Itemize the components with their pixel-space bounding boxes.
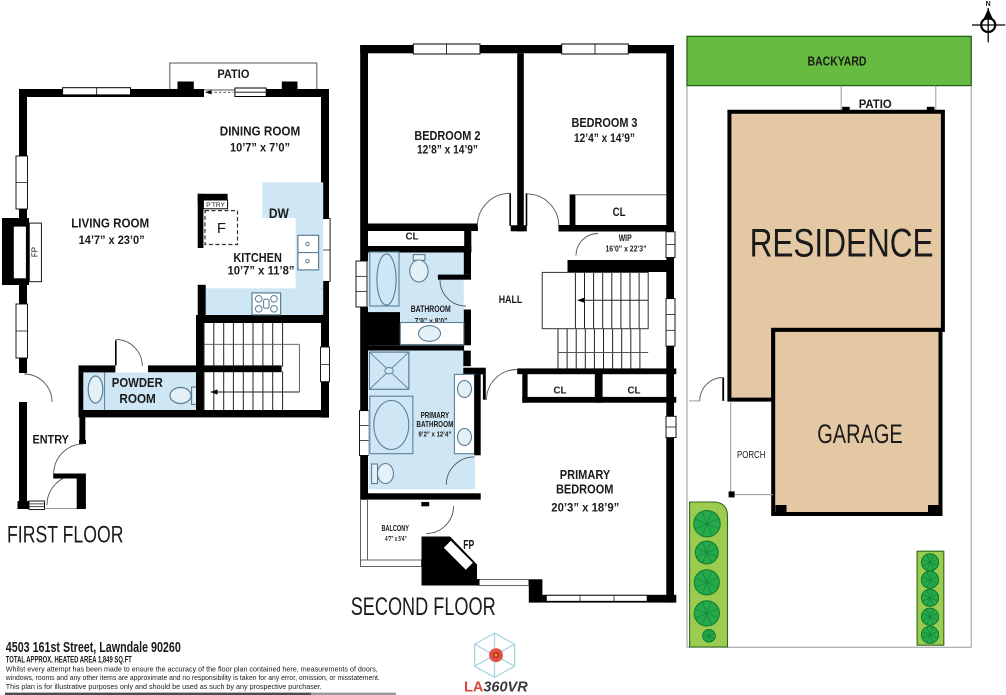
svg-text:HALL: HALL: [499, 294, 523, 306]
svg-text:PORCH: PORCH: [737, 450, 766, 461]
svg-text:windows, rooms and any other i: windows, rooms and any other items are a…: [5, 673, 380, 682]
svg-text:BEDROOM 2: BEDROOM 2: [414, 128, 480, 143]
svg-text:POWDER: POWDER: [112, 375, 164, 390]
svg-text:BATHROOM: BATHROOM: [411, 304, 451, 314]
svg-text:10’7” x 7’0”: 10’7” x 7’0”: [230, 143, 290, 155]
svg-text:FP: FP: [463, 537, 474, 552]
svg-text:CL: CL: [613, 207, 626, 219]
svg-text:PRIMARY: PRIMARY: [560, 468, 611, 482]
svg-text:9’2” x 12’4”: 9’2” x 12’4”: [418, 430, 451, 439]
svg-text:LA360VR: LA360VR: [464, 680, 528, 695]
svg-text:12’4” x 14’9”: 12’4” x 14’9”: [574, 133, 635, 145]
svg-text:LIVING ROOM: LIVING ROOM: [71, 216, 149, 231]
svg-text:Whilst every attempt has been: Whilst every attempt has been made to en…: [6, 665, 378, 674]
svg-text:GARAGE: GARAGE: [817, 419, 903, 449]
svg-text:This plan is for illustrative: This plan is for illustrative purposes o…: [6, 682, 322, 691]
svg-text:CL: CL: [628, 385, 642, 397]
svg-text:PATIO: PATIO: [859, 97, 892, 111]
svg-text:BACKYARD: BACKYARD: [808, 55, 867, 69]
svg-text:N: N: [986, 1, 991, 8]
svg-text:KITCHEN: KITCHEN: [233, 250, 282, 265]
svg-text:RESIDENCE: RESIDENCE: [750, 222, 934, 266]
svg-text:14’7” x 23’0”: 14’7” x 23’0”: [79, 235, 145, 247]
svg-text:4’7” x 5’4”: 4’7” x 5’4”: [385, 536, 407, 543]
svg-text:DINING ROOM: DINING ROOM: [220, 124, 301, 139]
svg-text:BEDROOM 3: BEDROOM 3: [572, 115, 638, 130]
svg-text:PATIO: PATIO: [217, 67, 249, 81]
svg-text:ROOM: ROOM: [119, 391, 156, 406]
svg-text:DW: DW: [269, 205, 290, 221]
svg-text:12’8” x 14’9”: 12’8” x 14’9”: [417, 145, 478, 157]
svg-text:BATHROOM: BATHROOM: [416, 419, 453, 429]
svg-text:BEDROOM: BEDROOM: [556, 483, 614, 497]
svg-text:FP: FP: [31, 247, 40, 257]
svg-text:CL: CL: [554, 385, 568, 397]
svg-text:10’7” x 11’8”: 10’7” x 11’8”: [228, 266, 295, 278]
svg-text:4503 161st Street, Lawndale 90: 4503 161st Street, Lawndale 90260: [6, 639, 181, 656]
svg-text:CL: CL: [406, 231, 420, 243]
svg-text:SECOND FLOOR: SECOND FLOOR: [351, 593, 496, 621]
svg-text:BALCONY: BALCONY: [381, 524, 409, 533]
svg-text:16’0” x 22’3”: 16’0” x 22’3”: [606, 244, 647, 254]
svg-text:FIRST FLOOR: FIRST FLOOR: [7, 522, 123, 549]
svg-text:F: F: [217, 220, 226, 237]
svg-text:20’3” x 18’9”: 20’3” x 18’9”: [551, 502, 619, 514]
svg-text:ENTRY: ENTRY: [32, 432, 69, 446]
svg-text:P’TRY: P’TRY: [206, 202, 225, 209]
